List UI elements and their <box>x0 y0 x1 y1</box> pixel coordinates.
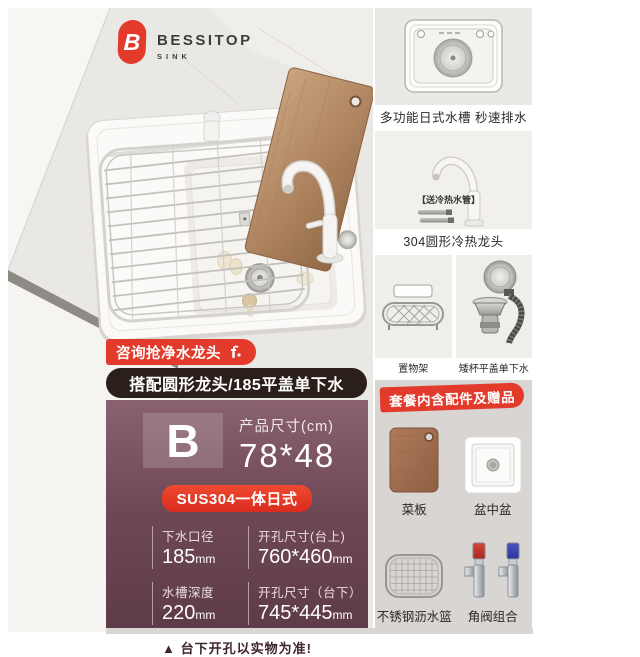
spec-sink-depth: 水槽深度 220mm <box>152 582 248 625</box>
bottom-shadow <box>106 628 533 634</box>
gift-item-angle-valves: 角阀组合 <box>454 523 533 630</box>
feature-panel-sink-top: 多功能日式水槽 秒速排水 <box>375 8 532 127</box>
specs-grid: 下水口径 185mm 开孔尺寸(台上) 760*460mm 水槽深度 220mm… <box>152 526 360 625</box>
brand-subtitle: SINK <box>157 52 253 61</box>
combo-pill: 搭配圆形龙头/185平盖单下水 <box>106 368 367 398</box>
spec-cutout-undermount: 开孔尺寸（台下） 745*445mm <box>248 582 360 625</box>
undermount-warning: ▲ 台下开孔以实物为准! <box>106 638 368 657</box>
spec-drain-diameter: 下水口径 185mm <box>152 526 248 569</box>
feature-panel-drain: 矮杯平盖单下水 <box>456 255 533 376</box>
combo-pill-label: 搭配圆形龙头/185平盖单下水 <box>129 371 344 395</box>
spec-panel: B 产品尺寸(cm) 78*48 SUS304一体日式 下水口径 185mm 开… <box>106 400 368 628</box>
angle-valves-icon <box>460 541 526 601</box>
gift-section: 套餐内含配件及赠品 菜板 盆中盆 <box>375 380 532 632</box>
product-size-value: 78*48 <box>239 437 335 475</box>
feature-caption-drain: 矮杯平盖单下水 <box>456 358 533 376</box>
consult-badge-label: 咨询抢净水龙头 <box>116 342 221 363</box>
product-size-label: 产品尺寸(cm) <box>239 415 335 436</box>
inner-basin-icon <box>464 436 522 494</box>
faucet-icon <box>228 344 242 360</box>
cutting-board-icon <box>387 426 441 494</box>
faucet-product-illustration <box>375 131 532 229</box>
gift-caption-inner-basin: 盆中盆 <box>474 499 512 518</box>
soap-dispenser-illustration <box>204 111 220 141</box>
brand-logo-icon: B <box>117 20 147 64</box>
spec-cutout-topmount: 开孔尺寸(台上) 760*460mm <box>248 526 360 569</box>
brand-name: BESSITOP <box>157 32 253 49</box>
variant-letter: B <box>143 413 223 468</box>
consult-badge[interactable]: 咨询抢净水龙头 <box>106 339 256 365</box>
feature-panel-rack: 置物架 <box>375 255 452 376</box>
drain-illustration <box>456 255 532 358</box>
gift-item-drain-basket: 不锈钢沥水篮 <box>375 523 454 630</box>
feature-caption-faucet: 304圆形冷热龙头 <box>375 229 532 251</box>
sink-topview-illustration <box>375 8 532 105</box>
free-hose-tag: 【送冷热水管】 <box>417 193 480 206</box>
gift-caption-drain-basket: 不锈钢沥水篮 <box>377 606 452 625</box>
drain-basket-icon <box>381 545 447 601</box>
gift-caption-cutting-board: 菜板 <box>402 499 427 518</box>
warning-triangle-icon: ▲ <box>162 641 176 656</box>
feature-caption-rack: 置物架 <box>375 358 452 376</box>
gift-caption-angle-valves: 角阀组合 <box>468 606 518 625</box>
gift-item-cutting-board: 菜板 <box>375 416 454 523</box>
gift-section-title: 套餐内含配件及赠品 <box>380 382 525 412</box>
warning-text: 台下开孔以实物为准! <box>181 641 312 656</box>
rack-illustration <box>375 255 451 358</box>
feature-caption-sink-top: 多功能日式水槽 秒速排水 <box>375 105 532 127</box>
gift-item-inner-basin: 盆中盆 <box>454 416 533 523</box>
feature-panel-faucet: 【送冷热水管】 304圆形冷热龙头 <box>375 131 532 251</box>
material-badge: SUS304一体日式 <box>162 485 313 512</box>
brand-logo: B BESSITOP SINK <box>118 20 253 64</box>
